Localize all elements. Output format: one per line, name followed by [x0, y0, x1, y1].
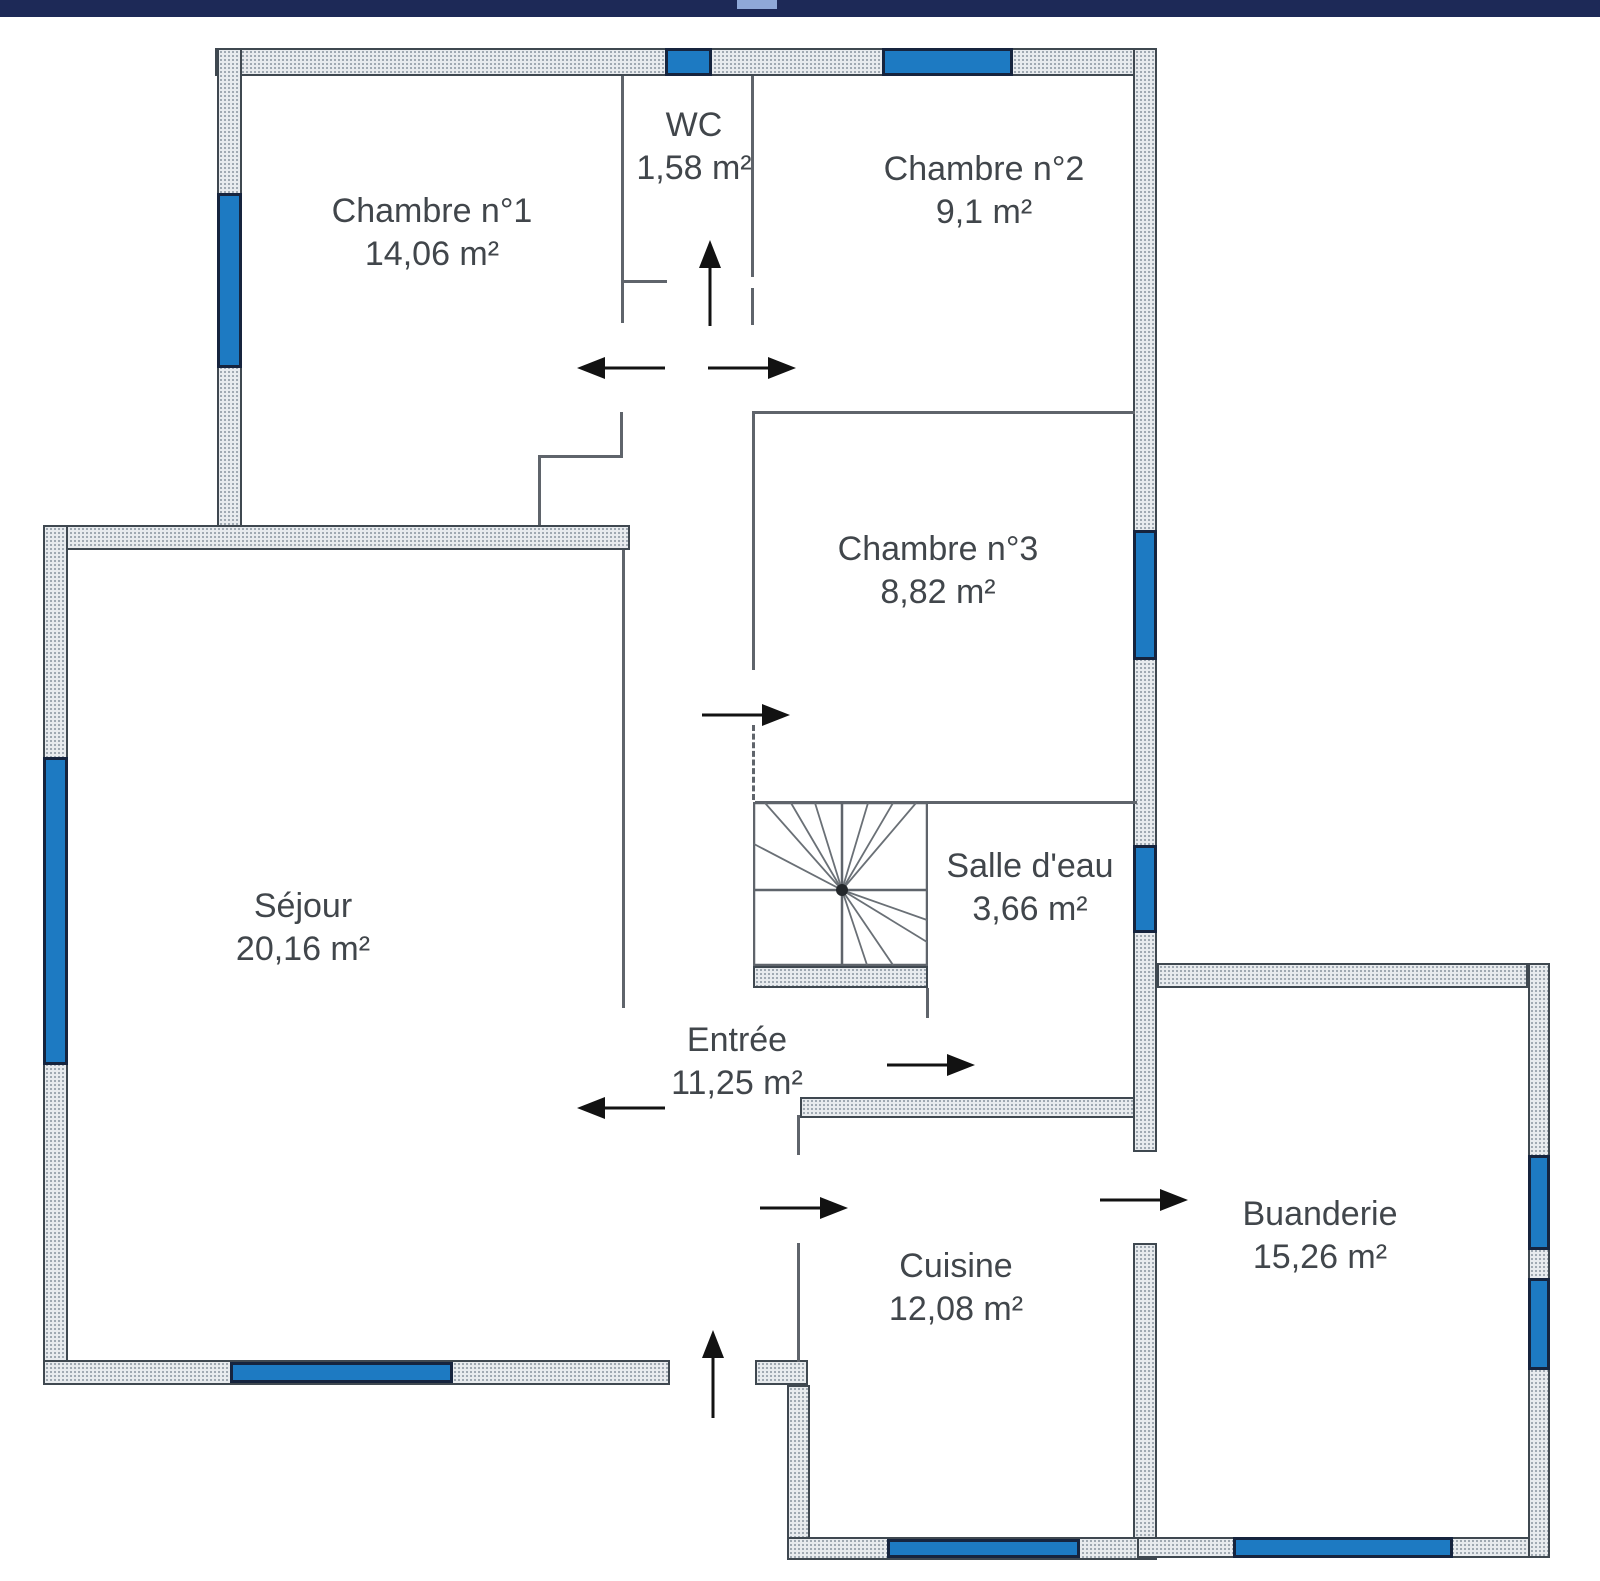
room-area: 12,08 m² [889, 1288, 1023, 1331]
partition-chambre1-nook-v1 [620, 412, 623, 457]
wall-sejour-top [43, 525, 630, 550]
room-name: Cuisine [889, 1245, 1023, 1288]
window-chambre3-east [1133, 530, 1157, 660]
window-salle-eau-east [1133, 845, 1157, 933]
door-arrow-left-chambre1 [575, 355, 667, 381]
room-label-buanderie: Buanderie 15,26 m² [1242, 1193, 1397, 1279]
room-area: 15,26 m² [1242, 1236, 1397, 1279]
window-sejour-south [230, 1362, 453, 1383]
room-area: 11,25 m² [671, 1062, 803, 1105]
wall-stair-south [753, 966, 928, 988]
partition-wc-east-lower [751, 288, 754, 325]
window-chambre1-west [217, 193, 242, 368]
room-name: WC [636, 104, 751, 147]
partition-chambre1-nook-v2 [538, 455, 541, 525]
door-arrow-right-cuisine [758, 1195, 850, 1221]
room-label-salle-eau: Salle d'eau 3,66 m² [946, 845, 1113, 931]
room-label-cuisine: Cuisine 12,08 m² [889, 1245, 1023, 1331]
partition-chambre3-west [752, 411, 755, 670]
room-name: Entrée [671, 1019, 803, 1062]
room-area: 3,66 m² [946, 888, 1113, 931]
room-name: Séjour [236, 885, 370, 928]
room-area: 1,58 m² [636, 147, 751, 190]
room-label-chambre3: Chambre n°3 8,82 m² [838, 528, 1039, 614]
room-name: Salle d'eau [946, 845, 1113, 888]
room-label-wc: WC 1,58 m² [636, 104, 751, 190]
wall-cuisine-west [787, 1385, 810, 1560]
wall-entrance-stub [755, 1360, 808, 1385]
room-name: Buanderie [1242, 1193, 1397, 1236]
partition-wc-west [621, 76, 624, 323]
door-opening-dashed [752, 725, 755, 800]
window-buanderie-east-1 [1528, 1155, 1550, 1250]
room-name: Chambre n°3 [838, 528, 1039, 571]
scan-header-notch [737, 0, 777, 9]
door-arrow-right-chambre2 [706, 355, 798, 381]
door-arrow-right-chambre3 [700, 702, 792, 728]
door-arrow-right-buanderie [1098, 1187, 1190, 1213]
partition-wc-tick [621, 280, 667, 283]
room-label-sejour: Séjour 20,16 m² [236, 885, 370, 971]
scan-header-bar [0, 0, 1600, 17]
wall-buanderie-east [1528, 963, 1550, 1558]
partition-chambre3-north [753, 411, 1135, 414]
floor-plan: Chambre n°1 14,06 m² WC 1,58 m² Chambre … [0, 0, 1600, 1581]
window-sejour-west [43, 757, 68, 1065]
window-buanderie-east-2 [1528, 1278, 1550, 1370]
window-top-large [882, 48, 1013, 76]
partition-cuisine-west-upper [797, 1115, 800, 1155]
room-label-chambre1: Chambre n°1 14,06 m² [332, 190, 533, 276]
window-top-small [665, 48, 712, 76]
room-label-chambre2: Chambre n°2 9,1 m² [884, 148, 1085, 234]
partition-cuisine-west-lower [797, 1243, 800, 1362]
partition-stair-east-ext [926, 988, 929, 1018]
partition-sejour-east [622, 550, 625, 1008]
door-arrow-left-sejour [575, 1095, 667, 1121]
wall-buanderie-top [1157, 963, 1528, 988]
room-name: Chambre n°1 [332, 190, 533, 233]
door-arrow-up-wc [697, 238, 723, 328]
room-area: 20,16 m² [236, 928, 370, 971]
room-area: 8,82 m² [838, 571, 1039, 614]
room-area: 14,06 m² [332, 233, 533, 276]
staircase [753, 802, 928, 966]
window-cuisine-south [887, 1539, 1080, 1558]
wall-east-lower [1133, 1243, 1157, 1558]
window-buanderie-south [1233, 1537, 1453, 1558]
staircase-hub [836, 884, 848, 896]
door-arrow-right-salle-eau [885, 1052, 977, 1078]
wall-salle-eau-south [800, 1097, 1135, 1118]
room-area: 9,1 m² [884, 191, 1085, 234]
partition-chambre1-nook-h [538, 455, 623, 458]
room-name: Chambre n°2 [884, 148, 1085, 191]
entrance-arrow-up [700, 1328, 726, 1420]
room-label-entree: Entrée 11,25 m² [671, 1019, 803, 1105]
